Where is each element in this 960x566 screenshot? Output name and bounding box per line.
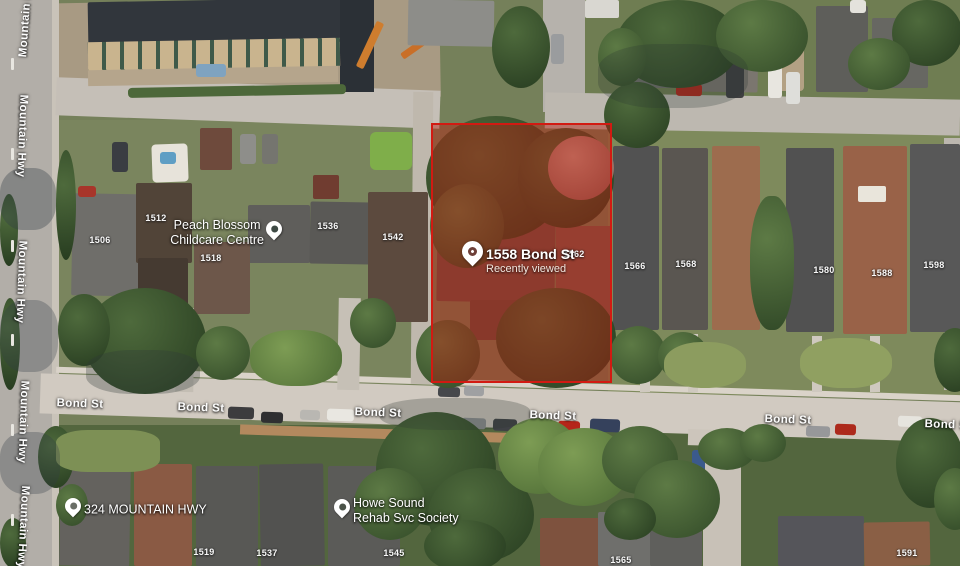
house-1536 — [309, 201, 372, 264]
lane-marking — [11, 240, 14, 252]
trailer-red — [78, 186, 96, 197]
car-partial — [850, 0, 866, 13]
house-brown-s — [134, 464, 192, 566]
car — [438, 387, 460, 398]
house-1568 — [662, 148, 708, 330]
shed-red — [313, 175, 339, 199]
car — [240, 134, 256, 164]
lane-marking — [11, 148, 14, 160]
tree-strip — [750, 196, 794, 330]
house-childcare — [248, 205, 310, 263]
car-white — [786, 72, 800, 104]
tree — [424, 520, 506, 566]
car — [464, 386, 484, 397]
car-red — [835, 424, 856, 436]
car — [262, 134, 278, 164]
tree — [848, 38, 910, 90]
grass-patch — [250, 330, 342, 386]
selected-place-name: 1558 Bond St — [486, 246, 575, 262]
shadow — [598, 44, 748, 108]
car — [806, 426, 830, 438]
lane-marking — [11, 424, 14, 436]
hedge — [740, 424, 786, 462]
shadow — [86, 350, 200, 394]
lawn — [664, 342, 746, 388]
shed-brown — [200, 128, 232, 170]
tree — [350, 298, 396, 348]
selected-place-status: Recently viewed — [486, 263, 575, 275]
house-1512 — [136, 183, 192, 263]
house-1519 — [196, 466, 258, 566]
tree — [56, 484, 88, 526]
house-1588 — [843, 146, 907, 334]
shadow — [0, 432, 60, 494]
hedge-left — [56, 150, 76, 260]
lawn — [800, 338, 892, 388]
shed-white — [585, 0, 619, 18]
tree — [604, 498, 656, 540]
house-1598 — [910, 144, 960, 332]
car-driveway — [551, 34, 564, 64]
shadow — [0, 300, 58, 372]
car — [300, 410, 320, 421]
house-1591 — [864, 521, 931, 566]
house-1537 — [259, 463, 325, 566]
tree — [354, 468, 426, 540]
tree — [492, 6, 550, 88]
truck — [196, 64, 226, 77]
tree — [196, 326, 250, 380]
shadow — [380, 398, 530, 430]
car — [112, 142, 128, 172]
lane-marking — [11, 58, 14, 70]
satellite-map[interactable]: Mountain HwyMountain HwyMountain HwyMoun… — [0, 0, 960, 566]
lane-marking — [11, 334, 14, 346]
building-top-center — [408, 0, 495, 47]
lawn — [56, 430, 160, 472]
van-white — [327, 409, 354, 422]
house-1566 — [613, 146, 659, 330]
house-brown-se — [540, 518, 602, 566]
roof-patch — [858, 186, 886, 202]
shadow — [0, 168, 56, 230]
lawn-bright — [370, 132, 412, 170]
house-1518 — [194, 242, 250, 314]
car — [261, 412, 283, 424]
lane-marking — [11, 514, 14, 526]
house-cross-gable — [778, 516, 864, 566]
selected-place-label: 1558 Bond St Recently viewed — [486, 246, 575, 275]
car — [228, 407, 254, 420]
pool — [160, 152, 176, 164]
